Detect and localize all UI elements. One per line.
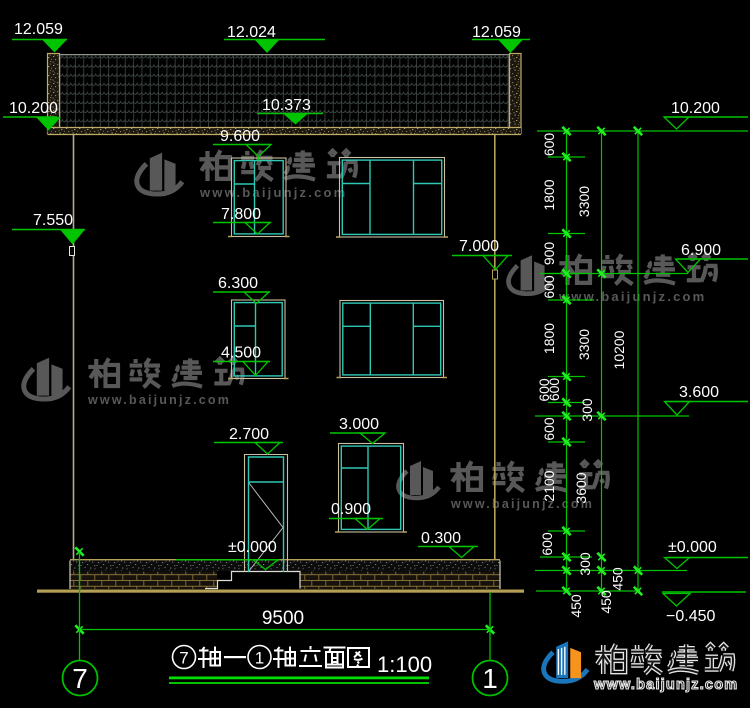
svg-text:600: 600 — [541, 275, 557, 299]
svg-text:600: 600 — [541, 133, 557, 157]
svg-text:7.800: 7.800 — [221, 206, 261, 223]
svg-text:6.300: 6.300 — [218, 275, 258, 292]
svg-text:7.550: 7.550 — [33, 212, 73, 229]
svg-text:450: 450 — [568, 594, 584, 618]
svg-text:1800: 1800 — [541, 323, 557, 354]
svg-text:600: 600 — [539, 532, 555, 556]
svg-text:www.baijunjz.com: www.baijunjz.com — [199, 185, 347, 200]
svg-text:300: 300 — [579, 398, 595, 422]
svg-text:3300: 3300 — [576, 186, 592, 217]
svg-text:2.700: 2.700 — [229, 426, 269, 443]
svg-text:12.059: 12.059 — [14, 21, 63, 38]
svg-text:0.900: 0.900 — [331, 501, 371, 518]
svg-text:3.600: 3.600 — [679, 384, 719, 401]
svg-text:3.000: 3.000 — [339, 416, 379, 433]
svg-text:900: 900 — [541, 242, 557, 266]
svg-text:1: 1 — [482, 663, 498, 694]
svg-text:4.500: 4.500 — [221, 345, 261, 362]
svg-text:1: 1 — [255, 649, 264, 668]
svg-text:±0.000: ±0.000 — [668, 539, 717, 556]
svg-text:10200: 10200 — [611, 330, 627, 369]
svg-text:450: 450 — [598, 590, 614, 614]
svg-text:10.200: 10.200 — [671, 100, 720, 117]
svg-text:10.373: 10.373 — [262, 97, 311, 114]
svg-text:7: 7 — [72, 663, 88, 694]
svg-text:9.600: 9.600 — [220, 128, 260, 145]
svg-text:600: 600 — [546, 378, 562, 402]
svg-text:450: 450 — [610, 567, 626, 591]
svg-text:±0.000: ±0.000 — [228, 539, 277, 556]
svg-text:10.200: 10.200 — [9, 100, 58, 117]
svg-text:600: 600 — [541, 417, 557, 441]
svg-text:12.024: 12.024 — [227, 24, 276, 41]
svg-text:1800: 1800 — [541, 179, 557, 210]
svg-text:1:100: 1:100 — [377, 652, 432, 677]
svg-text:−0.450: −0.450 — [666, 608, 715, 625]
svg-text:www.baijunjz.com: www.baijunjz.com — [558, 289, 706, 304]
svg-text:12.059: 12.059 — [472, 24, 521, 41]
svg-text:www.baijunjz.com: www.baijunjz.com — [593, 677, 738, 693]
svg-text:0.300: 0.300 — [421, 530, 461, 547]
svg-text:7.000: 7.000 — [459, 238, 499, 255]
svg-text:www.baijunjz.com: www.baijunjz.com — [87, 393, 231, 407]
svg-text:7: 7 — [179, 649, 188, 668]
svg-text:300: 300 — [577, 552, 593, 576]
svg-text:6.900: 6.900 — [681, 242, 721, 259]
svg-text:3300: 3300 — [576, 329, 592, 360]
svg-text:2100: 2100 — [541, 470, 557, 501]
svg-text:3600: 3600 — [573, 472, 589, 503]
svg-text:9500: 9500 — [262, 608, 304, 629]
